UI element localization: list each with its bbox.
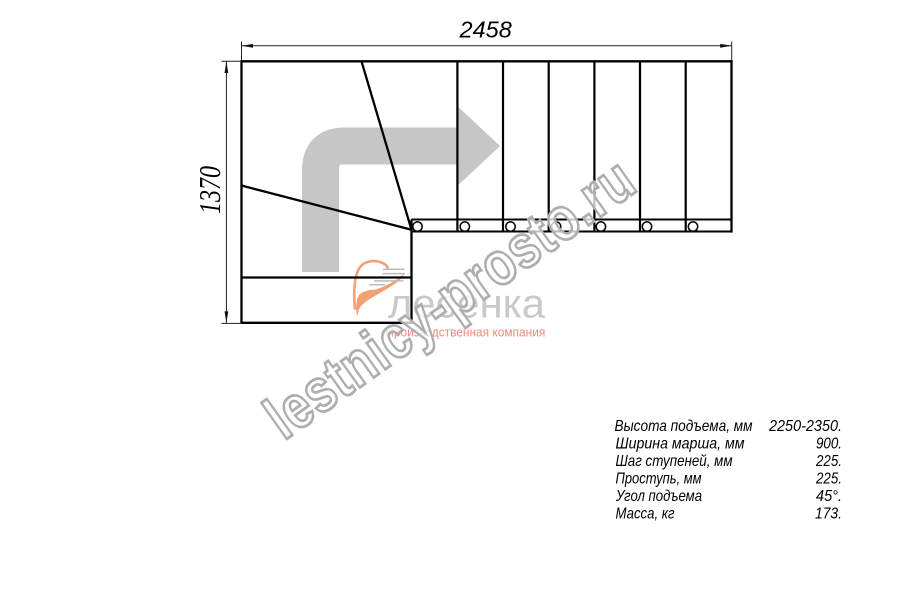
svg-text:173.: 173. <box>815 505 842 522</box>
svg-text:Угол подъема: Угол подъема <box>615 488 702 505</box>
svg-text:45°.: 45°. <box>816 488 842 505</box>
svg-text:Проступь, мм: Проступь, мм <box>616 471 702 488</box>
svg-text:Масса, кг: Масса, кг <box>616 505 675 522</box>
svg-text:Высота подъема, мм: Высота подъема, мм <box>615 418 753 435</box>
svg-text:900.: 900. <box>816 436 842 453</box>
svg-text:225.: 225. <box>815 471 842 488</box>
svg-text:Шаг ступеней, мм: Шаг ступеней, мм <box>616 453 733 470</box>
svg-text:225.: 225. <box>815 453 842 470</box>
svg-text:1370: 1370 <box>193 166 227 214</box>
svg-text:2458: 2458 <box>459 17 512 43</box>
svg-text:2250-2350.: 2250-2350. <box>768 418 842 435</box>
svg-text:Ширина марша, мм: Ширина марша, мм <box>616 436 745 453</box>
